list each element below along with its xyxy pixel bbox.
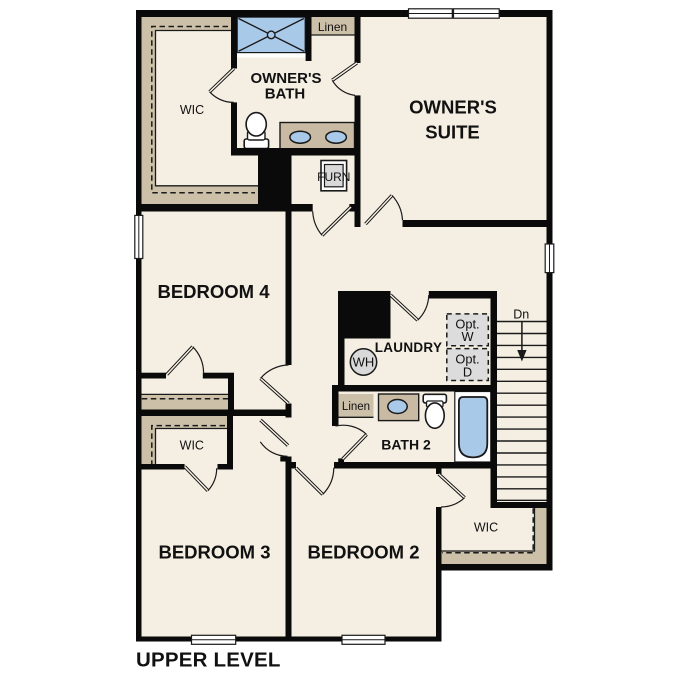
- svg-text:WIC: WIC: [180, 103, 204, 117]
- svg-text:BEDROOM 2: BEDROOM 2: [307, 541, 419, 562]
- svg-text:FURN: FURN: [317, 170, 350, 184]
- svg-text:Linen: Linen: [342, 401, 370, 413]
- svg-text:LAUNDRY: LAUNDRY: [375, 340, 443, 355]
- svg-text:Linen: Linen: [318, 20, 347, 34]
- svg-text:OWNER'S: OWNER'S: [409, 97, 497, 118]
- svg-text:OWNER'S: OWNER'S: [250, 70, 321, 87]
- svg-text:Dn: Dn: [513, 308, 529, 322]
- svg-text:WH: WH: [353, 355, 375, 370]
- svg-text:WIC: WIC: [180, 439, 204, 453]
- svg-text:UPPER LEVEL: UPPER LEVEL: [136, 649, 281, 672]
- svg-text:WIC: WIC: [474, 521, 498, 535]
- svg-text:BATH: BATH: [265, 86, 306, 103]
- svg-text:BATH 2: BATH 2: [381, 437, 431, 453]
- svg-text:BEDROOM 4: BEDROOM 4: [157, 281, 270, 302]
- svg-text:BEDROOM 3: BEDROOM 3: [158, 541, 270, 562]
- svg-text:D: D: [463, 364, 472, 379]
- svg-text:W: W: [461, 329, 474, 344]
- svg-text:SUITE: SUITE: [425, 122, 479, 143]
